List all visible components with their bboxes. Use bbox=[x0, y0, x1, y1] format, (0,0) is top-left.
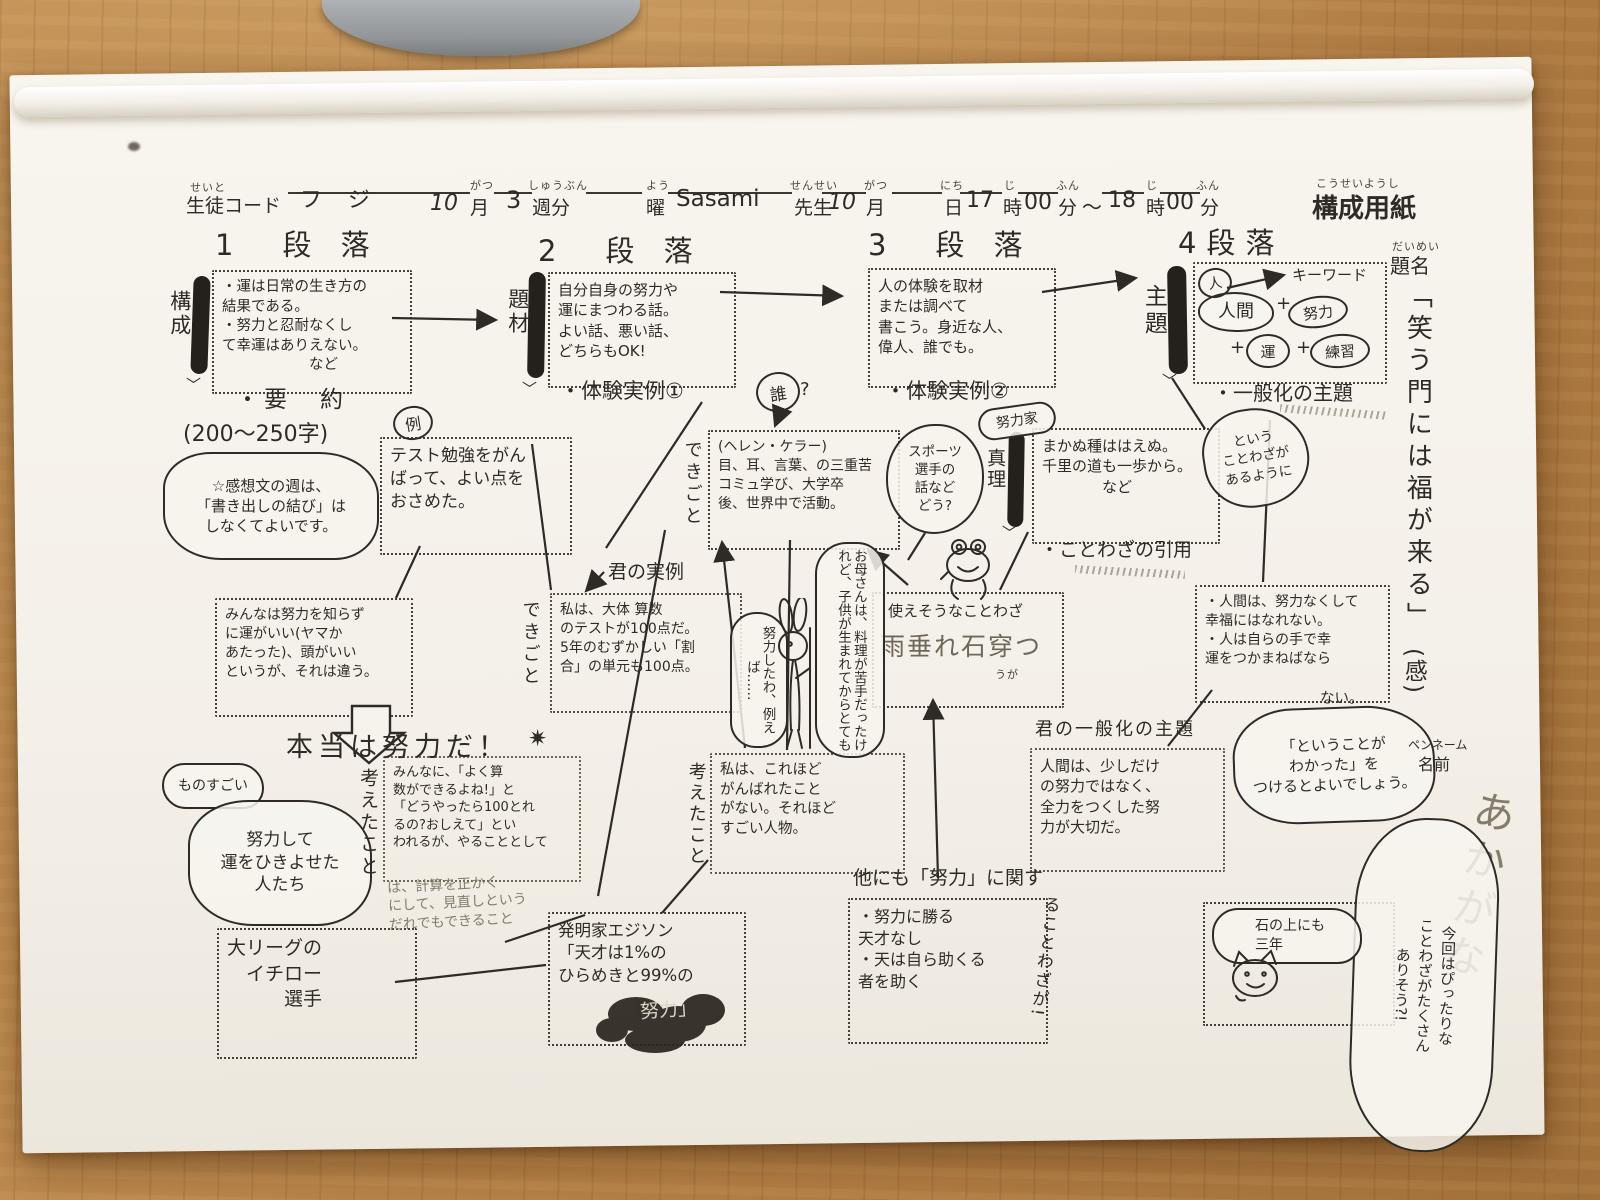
start-min-value: 00 bbox=[1024, 188, 1052, 217]
start-min-label: 分 bbox=[1058, 196, 1077, 221]
student-code-furigana: せいと bbox=[190, 179, 226, 195]
date-day-label: 日 bbox=[944, 196, 963, 221]
start-min-furigana: ふん bbox=[1056, 177, 1080, 193]
p1-note-cloud: ☆感想文の週は、 「書き出しの結び」は しなくてよいです。 bbox=[163, 452, 379, 560]
kousei-hook: ﹀ bbox=[186, 376, 201, 396]
section-label-daizai: 題材 bbox=[503, 288, 531, 336]
end-hour-furigana: じ bbox=[1146, 177, 1158, 193]
p2-taiken-label: ・体験実例① bbox=[560, 378, 684, 406]
p1-summary: ・要 約 bbox=[236, 385, 348, 415]
ink-smudge bbox=[128, 142, 140, 151]
keyword-label: キーワード bbox=[1292, 266, 1367, 286]
sansu-pencil-more: は、計算を正かく にして、見直しという だれでもできること bbox=[387, 869, 600, 935]
time-tilde: 〜 bbox=[1082, 194, 1102, 220]
hikiyose-cloud: 努力して 運をひきよせた 人たち bbox=[188, 800, 372, 926]
date-month-value: 10 bbox=[828, 188, 856, 217]
section-label-shudai: 主題 bbox=[1138, 284, 1168, 338]
weekday-furigana: よう bbox=[646, 177, 670, 193]
daimei-label: 題名 bbox=[1390, 253, 1430, 279]
p1-hontou-text: 本当は努力だ！ bbox=[286, 730, 510, 766]
teacher-name-value: Sasami bbox=[676, 184, 760, 214]
student-code-label: 生徒コード bbox=[186, 194, 281, 219]
month-furigana: がつ bbox=[470, 177, 494, 193]
kondo-cloud: 今回はぴったりな ことわざがたくさん ありそう?! bbox=[1346, 816, 1502, 1155]
paragraph4-heading: 4段落 bbox=[1178, 224, 1284, 262]
end-hour-label: 時 bbox=[1146, 196, 1165, 221]
month-value: 10 bbox=[430, 189, 458, 218]
week-label: 週分 bbox=[532, 196, 570, 221]
frog-doodle bbox=[940, 536, 998, 602]
week-value: 3 bbox=[506, 185, 521, 217]
end-min-label: 分 bbox=[1200, 196, 1219, 221]
daimei-furigana: だいめい bbox=[1392, 238, 1440, 254]
wakatta-cloud: 「ということが わかった」を つけるとよいでしょう。 bbox=[1231, 704, 1437, 827]
paragraph3-heading: 3 段 落 bbox=[868, 226, 1033, 264]
start-hour-label: 時 bbox=[1003, 196, 1022, 221]
essay-title-kan: (感) bbox=[1398, 648, 1428, 695]
date-month-label: 月 bbox=[866, 196, 885, 221]
teacher-label: 先生 bbox=[794, 196, 832, 221]
kimi-ippanka-label: 君の一般化の主題 bbox=[1035, 718, 1195, 742]
p1-star-mark: ✷ bbox=[528, 724, 547, 754]
sheet-title: 構成用紙 bbox=[1312, 192, 1416, 226]
edison-last-word: 努力」 bbox=[639, 996, 698, 1025]
hokanimo-label: 他にも「努力」に関す bbox=[853, 866, 1043, 891]
p1-char-count: (200〜250字) bbox=[183, 420, 328, 449]
start-hour-value: 17 bbox=[966, 186, 994, 215]
shudai-hook: ﹀ bbox=[1162, 372, 1177, 392]
weekday-label: 曜 bbox=[646, 196, 665, 221]
ippanka-label: ・一般化の主題 bbox=[1213, 380, 1353, 406]
dare-question-mark: ? bbox=[800, 378, 810, 402]
start-hour-furigana: じ bbox=[1004, 177, 1016, 193]
paragraph1-heading: 1 段 落 bbox=[215, 226, 380, 264]
paragraph2-heading: 2 段 落 bbox=[538, 232, 703, 270]
p3-dekigoto-label: できごと bbox=[680, 440, 704, 528]
shinri-hook: ﹀ bbox=[1002, 524, 1017, 544]
week-furigana: しゅうぶん bbox=[528, 177, 588, 193]
cat-doodle bbox=[1222, 948, 1282, 1004]
p2-dekigoto-label: できごと bbox=[518, 600, 542, 688]
date-month-furigana: がつ bbox=[864, 177, 888, 193]
kimi-jitsurei-label: 君の実例 bbox=[608, 560, 684, 585]
penname-label: ペンネーム bbox=[1408, 738, 1467, 754]
daizai-hook: ﹀ bbox=[522, 380, 537, 400]
date-day-furigana: にち bbox=[940, 177, 964, 193]
p3-kangaeta-label: 考えたこと bbox=[684, 762, 708, 867]
student-code-value: フジ bbox=[300, 186, 396, 215]
end-hour-value: 18 bbox=[1108, 186, 1136, 215]
month-label: 月 bbox=[470, 196, 489, 221]
rabbit-doodle bbox=[768, 598, 820, 758]
p3-taiken-label: ・体験実例② bbox=[885, 378, 1009, 406]
essay-title-vertical: 「笑う門には福が来る」 bbox=[1400, 282, 1434, 682]
sports-bubble: スポーツ 選手の 話など どう? bbox=[886, 424, 984, 534]
inyou-label: ・ことわざの引用 bbox=[1040, 538, 1192, 563]
sheet-title-furigana: こうせいようし bbox=[1316, 175, 1400, 191]
plus3: + bbox=[1296, 336, 1311, 360]
okasan-bubble: お母さんは、料理が苦手だったけれど、子供が生まれてからとても bbox=[815, 542, 885, 758]
end-min-value: 00 bbox=[1166, 188, 1194, 217]
section-label-kousei: 構成 bbox=[165, 290, 193, 338]
name-label: 名前 bbox=[1418, 754, 1450, 775]
plus2: + bbox=[1230, 336, 1245, 360]
end-min-furigana: ふん bbox=[1196, 177, 1220, 193]
ningen-keyword: 人間 bbox=[1198, 292, 1274, 332]
p1-kangaeta-label: 考えたこと bbox=[355, 768, 380, 878]
un-keyword: 運 bbox=[1246, 334, 1290, 368]
section-label-shinri: 真理 bbox=[982, 448, 1007, 490]
